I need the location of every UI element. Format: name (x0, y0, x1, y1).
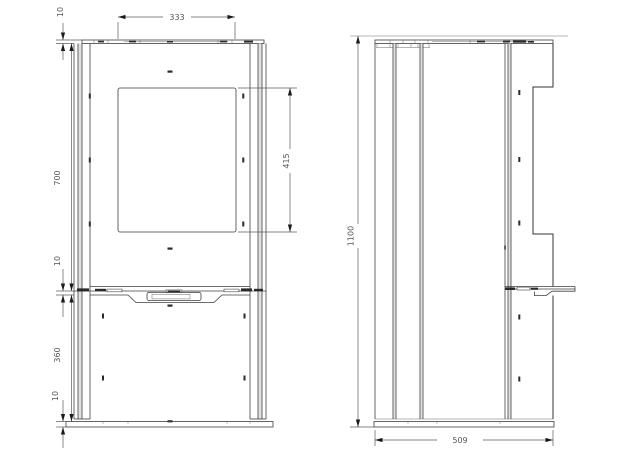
top-panel (82, 40, 264, 44)
dimension-base-thickness: 10 (51, 391, 65, 448)
dim-label-overall-height: 1100 (347, 226, 356, 246)
dimension-upper-section-height: 700 (53, 44, 74, 292)
shelf-and-handle (74, 287, 266, 303)
dim-label-upper-height: 700 (53, 170, 62, 185)
center-marks (168, 71, 173, 423)
dim-label-lower-height: 360 (53, 347, 62, 362)
dim-label-base-thickness: 10 (51, 391, 60, 401)
dimension-shelf-thickness: 10 (53, 256, 65, 317)
side-handle (505, 287, 575, 296)
side-base-panel (374, 419, 554, 427)
dim-label-opening-width: 333 (169, 13, 184, 22)
left-side-rail (74, 44, 90, 420)
dim-label-door-height: 415 (282, 153, 291, 168)
side-view-dimensions: 1100 509 (347, 36, 554, 446)
cabinet-dimension-drawing: 10 700 10 360 (0, 0, 624, 460)
dimension-overall-depth: 509 (375, 430, 553, 446)
dimension-top-opening-width: 333 (118, 13, 235, 39)
handle-bar (147, 292, 201, 300)
front-view (66, 40, 273, 427)
side-view (350, 36, 575, 427)
technical-drawing-canvas: 10 700 10 360 (0, 0, 624, 460)
dimension-door-panel-height: 415 (238, 88, 297, 232)
side-panel-strips (393, 44, 511, 420)
fastener-slots-lower (102, 314, 246, 381)
dim-label-shelf-thickness: 10 (53, 256, 62, 266)
dimension-overall-height: 1100 (347, 36, 375, 427)
side-top-panel (375, 40, 553, 44)
door-panel (118, 88, 236, 232)
dimension-top-panel-thickness: 10 (56, 7, 65, 60)
dim-label-overall-depth: 509 (452, 436, 467, 445)
fastener-slots-upper (89, 94, 245, 227)
dim-label-top-thickness: 10 (56, 7, 65, 17)
side-front-profile (533, 44, 553, 420)
right-side-rail (250, 44, 266, 420)
side-fastener-slots (504, 90, 520, 382)
